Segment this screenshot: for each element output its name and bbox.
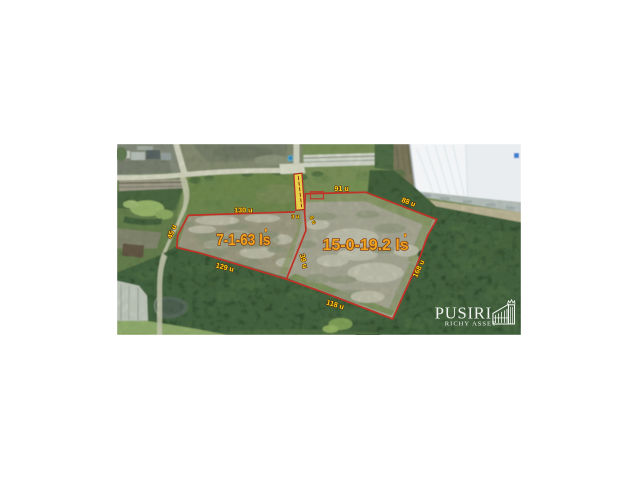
svg-text:15-0-19.2 ls: 15-0-19.2 ls: [323, 237, 410, 254]
svg-text:3 u: 3 u: [291, 214, 299, 220]
svg-text:130 u: 130 u: [234, 205, 252, 214]
svg-text:RICHY ASSET: RICHY ASSET: [445, 320, 497, 327]
svg-text:91 u: 91 u: [334, 184, 348, 193]
svg-text:7-1-63 ls: 7-1-63 ls: [216, 232, 270, 249]
